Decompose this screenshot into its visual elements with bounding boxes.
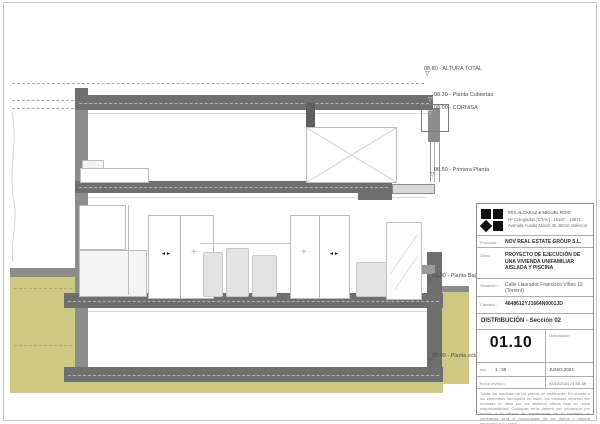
terrain-dash-line [14, 288, 72, 289]
terrace-slab [392, 184, 435, 194]
upper-door [306, 127, 397, 183]
fixed-panel-cross-icon: + [191, 249, 197, 257]
catastro-row: Catastro : 4648612YJ1664N0001JD [477, 296, 593, 314]
level-flag-icon: ▽ [428, 279, 479, 284]
level-flag-icon: ▽ [428, 98, 493, 103]
promotor-label: Promotor : [480, 240, 499, 245]
level-marker-cornisa: 08.00 - CORNISA ▽ [434, 105, 478, 116]
scale-date-row: esc : 1 : 50 JUNIO 2024 [477, 362, 593, 377]
title-block: IRIS ALCARAZ & MIGUEL ROIG Nº Colegiados… [476, 203, 594, 415]
catastro-value: 4648612YJ1664N0001JD [505, 301, 563, 307]
kitchen-counter [79, 250, 147, 297]
sliding-arrows-icon: ◄► [329, 252, 339, 257]
ceiling-line-upper [88, 113, 428, 114]
situacion-label: Situación : [480, 283, 499, 288]
situacion-value: Calle Llaurador Francisco Viñes 12 (Torr… [505, 282, 585, 294]
disclaimer-text: Todas las medidas de los planos se verif… [480, 391, 590, 424]
site-boundary-line [4, 112, 24, 262]
ceiling-line-basement [88, 311, 427, 312]
level-flag-icon: ▽ [428, 111, 478, 116]
disclaimer-row: Todas las medidas de los planos se verif… [477, 388, 593, 415]
terrain-dash-line [14, 345, 72, 346]
level-marker-altura-total: 08.80 - ALTURA TOTAL ▽ [424, 66, 482, 77]
fixed-panel-cross-icon: + [301, 249, 307, 257]
revision-value: 02/10/2024 21:05:38 [549, 381, 586, 386]
revision-label: fecha revisión [480, 381, 505, 386]
level-marker-primera-planta: 06.50 - Primera Planta ▽ [434, 167, 489, 178]
total-height-refline [12, 83, 424, 84]
sliding-arrows-icon: ◄► [161, 252, 171, 257]
drawing-title: DISTRIBUCIÓN - Sección 02 [481, 318, 561, 324]
drawing-title-row: DISTRIBUCIÓN - Sección 02 [477, 313, 593, 330]
terrain-right-cap [441, 286, 469, 292]
catastro-label: Catastro : [480, 302, 497, 307]
dining-chair [226, 248, 249, 297]
roof-slab [75, 95, 433, 110]
glass-door-right [386, 222, 422, 300]
orientation-label: Orientación [549, 333, 569, 338]
situacion-row: Situación : Calle Llaurador Francisco Vi… [477, 278, 593, 297]
sliding-door-2: + ◄► [290, 215, 350, 299]
bed [80, 168, 149, 183]
date-value: JUNIO 2024 [549, 367, 574, 372]
architect-header: IRIS ALCARAZ & MIGUEL ROIG Nº Colegiados… [477, 204, 593, 235]
dining-chair [252, 255, 277, 297]
wall-stub-above-door [306, 103, 315, 127]
cell-divider [545, 363, 546, 377]
cornice-level-refline [12, 108, 74, 109]
scale-label: esc : [480, 367, 488, 372]
sheet-number: 01.10 [477, 334, 545, 352]
obra-value: PROYECTO DE EJECUCIÓN DE UNA VIVIENDA UN… [505, 252, 588, 272]
kitchen-tall-unit [79, 205, 126, 250]
studio-logo-icon [481, 209, 503, 231]
level-flag-icon: ▽ [425, 72, 482, 77]
section-drawing: ◄► + + ◄► 08.80 - ALTURA TOTA [0, 0, 476, 424]
kitchen-column [128, 205, 129, 295]
level-marker-planta-baja: 03.00 - Planta Baja ▽ [432, 273, 479, 284]
dining-chair [203, 252, 223, 297]
roof-level-refline [12, 100, 74, 101]
basement-slab [64, 367, 443, 382]
obra-label: Obra : [480, 253, 491, 258]
promotor-value: NOV REAL ESTATE GROUP S.L. [505, 239, 581, 245]
terrain-left-cap [10, 268, 75, 277]
level-marker-planta-cubiertas: 08.30 - Planta Cubiertas ▽ [434, 92, 493, 103]
sheet-number-row: 01.10 Orientación [477, 329, 593, 363]
glass-reflection-icon [387, 223, 421, 299]
scale-value: 1 : 50 [495, 367, 506, 372]
cell-divider [545, 330, 546, 363]
terrain-right [441, 292, 469, 384]
door-diagonals-icon [307, 128, 396, 182]
drawing-sheet: ◄► + + ◄► 08.80 - ALTURA TOTA [0, 0, 600, 424]
obra-row: Obra : PROYECTO DE EJECUCIÓN DE UNA VIVI… [477, 247, 593, 279]
architect-address: Avenida Ausiàs March 35 46010 València [508, 223, 590, 230]
level-flag-icon: ▽ [430, 173, 489, 178]
slab-edge-step [358, 193, 392, 200]
